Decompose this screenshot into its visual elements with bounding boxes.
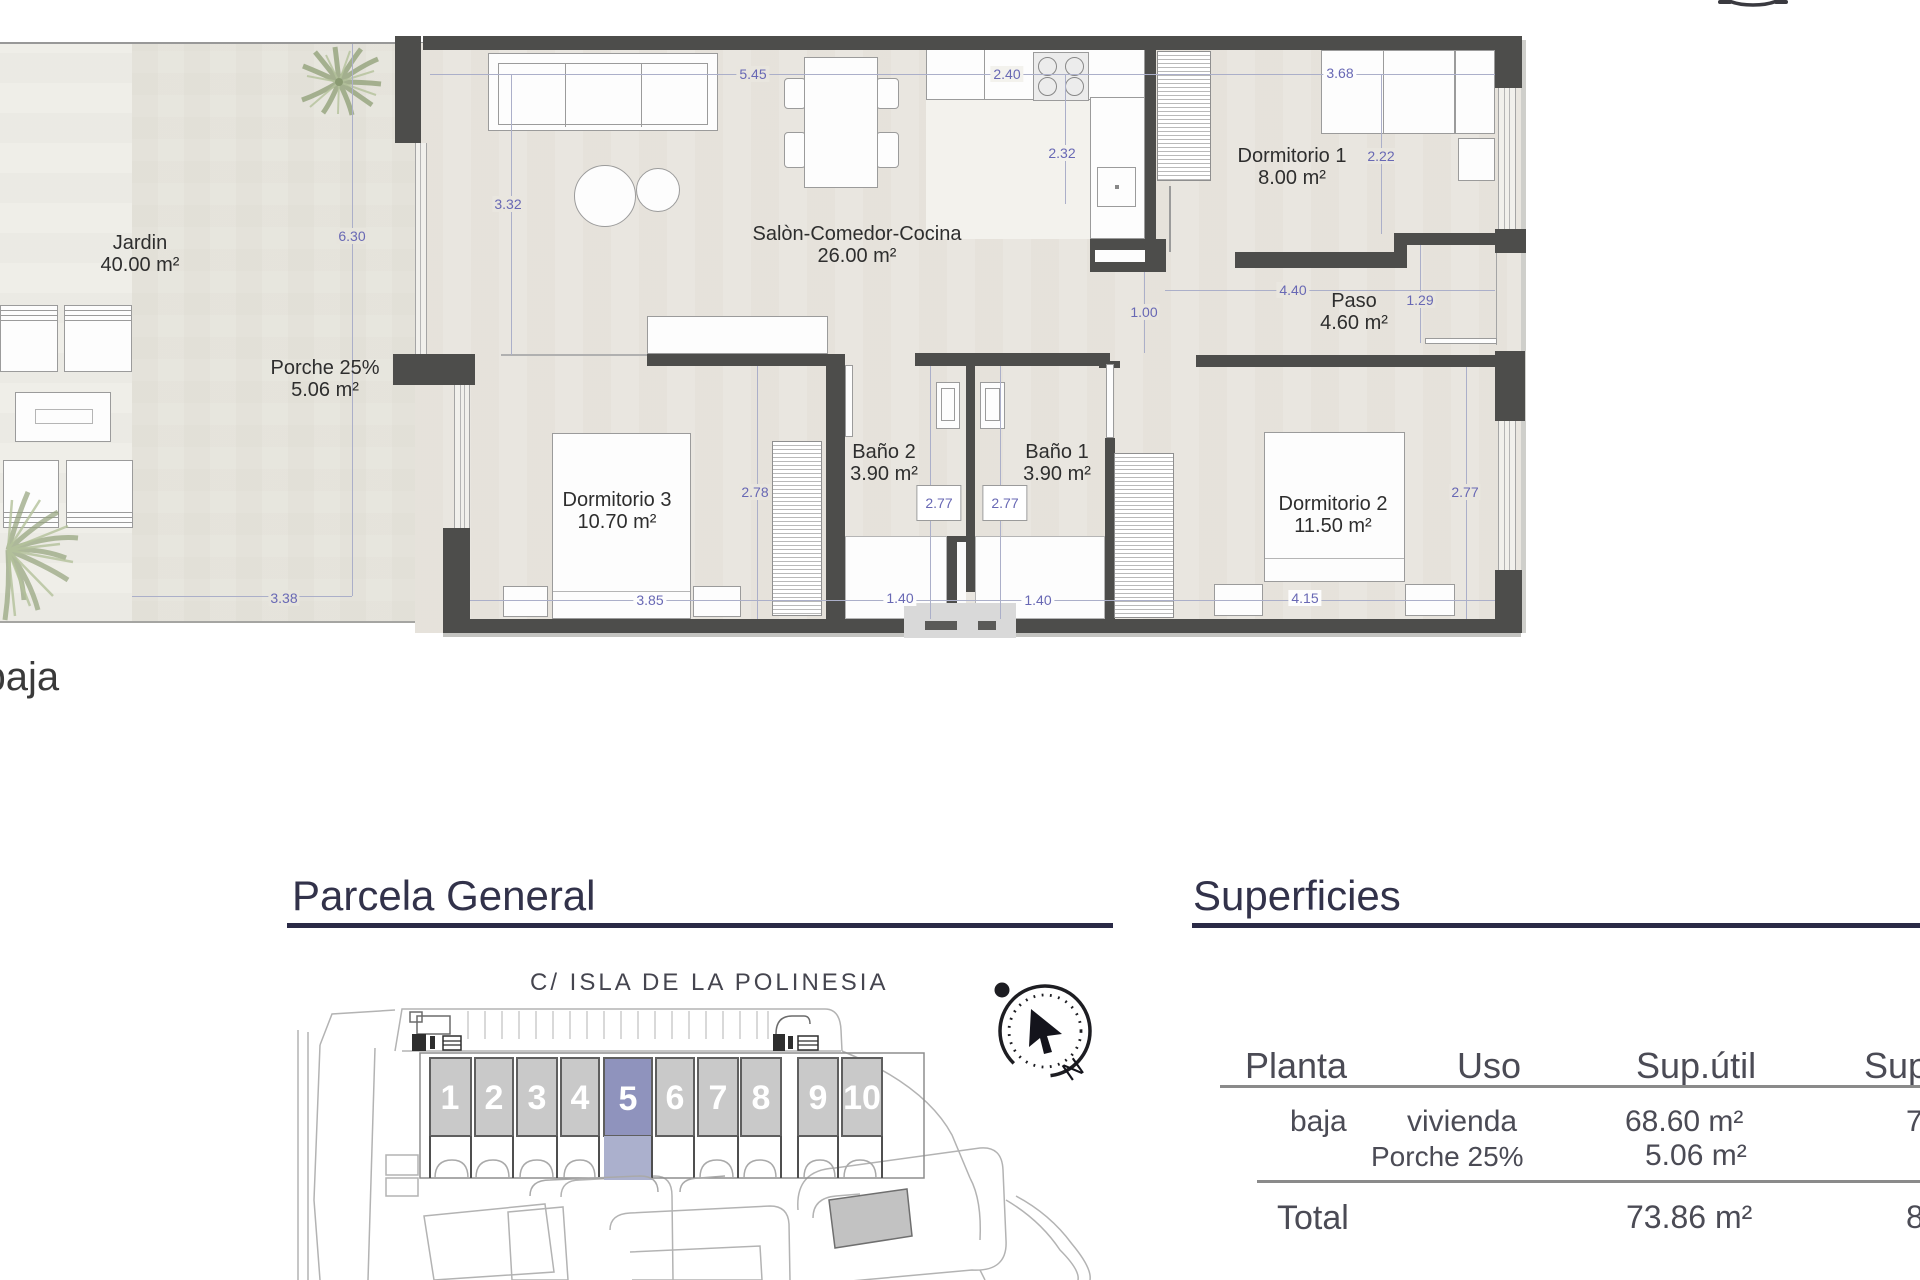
svg-text:5: 5 xyxy=(619,1080,638,1118)
svg-text:N: N xyxy=(1057,1051,1090,1086)
svg-text:1: 1 xyxy=(441,1079,460,1117)
svg-text:8: 8 xyxy=(752,1079,771,1117)
svg-text:6: 6 xyxy=(666,1079,685,1117)
svg-text:4: 4 xyxy=(571,1079,590,1117)
svg-text:9: 9 xyxy=(809,1079,828,1117)
svg-text:3: 3 xyxy=(528,1079,547,1117)
svg-text:7: 7 xyxy=(709,1079,728,1117)
svg-text:10: 10 xyxy=(843,1079,881,1117)
svg-text:2: 2 xyxy=(485,1079,504,1117)
